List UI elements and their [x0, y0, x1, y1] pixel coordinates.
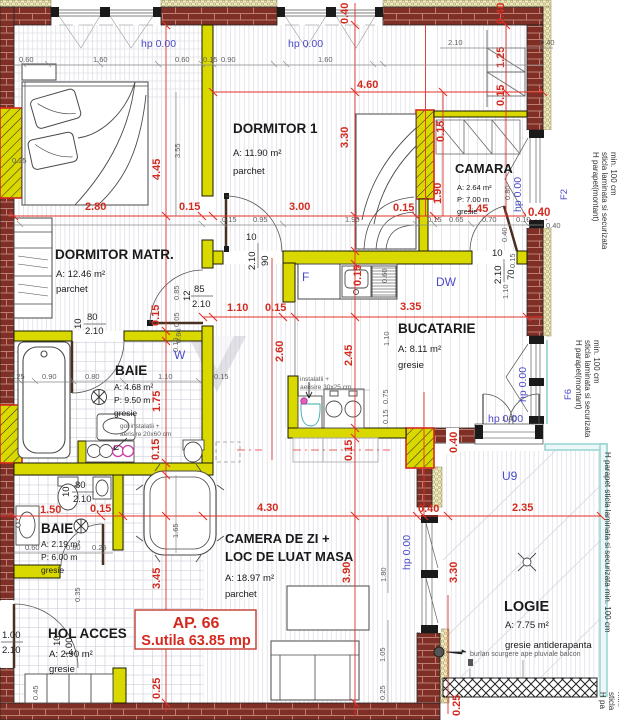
svg-text:2.10: 2.10: [247, 252, 258, 271]
svg-text:0.45: 0.45: [31, 685, 40, 700]
svg-text:1.10: 1.10: [227, 302, 248, 314]
svg-text:hp 0.00: hp 0.00: [517, 367, 529, 402]
svg-text:4.45: 4.45: [151, 159, 163, 180]
svg-text:3.30: 3.30: [448, 562, 460, 583]
svg-text:0.15: 0.15: [495, 85, 507, 106]
svg-text:0.15: 0.15: [435, 121, 447, 142]
svg-text:parchet: parchet: [56, 284, 88, 295]
svg-text:0.40: 0.40: [500, 227, 509, 242]
svg-text:12: 12: [182, 290, 193, 301]
svg-text:sticla: sticla: [607, 692, 616, 711]
svg-text:H parapet sticla laminata si s: H parapet sticla laminata si securizata …: [603, 452, 612, 633]
svg-text:0.40: 0.40: [448, 432, 460, 453]
svg-text:0.15: 0.15: [352, 265, 364, 286]
svg-text:LOGIE: LOGIE: [504, 599, 549, 615]
svg-text:1.10: 1.10: [501, 284, 510, 299]
svg-text:instalatii +: instalatii +: [300, 376, 329, 383]
svg-text:A: 2.64 m²: A: 2.64 m²: [457, 183, 492, 192]
svg-text:parchet: parchet: [225, 589, 257, 600]
svg-text:hp 0.00: hp 0.00: [401, 535, 413, 570]
svg-text:gresie antiderapanta: gresie antiderapanta: [505, 640, 592, 651]
svg-text:0.15: 0.15: [222, 215, 237, 224]
svg-text:1.60: 1.60: [318, 55, 333, 64]
svg-text:sticla laminata si securizata: sticla laminata si securizata: [600, 152, 609, 250]
svg-text:min. 100 cm: min. 100 cm: [609, 152, 618, 196]
svg-text:A: 8.11 m²: A: 8.11 m²: [398, 344, 441, 355]
svg-text:BAIE: BAIE: [115, 363, 147, 378]
svg-text:burlan scurgere ape pluviale b: burlan scurgere ape pluviale balcon: [470, 651, 581, 658]
svg-text:BAIE: BAIE: [41, 521, 73, 536]
svg-text:0.15: 0.15: [381, 409, 390, 424]
svg-text:BUCATARIE: BUCATARIE: [398, 321, 476, 336]
svg-text:2.80: 2.80: [85, 201, 106, 213]
svg-text:0.15: 0.15: [214, 372, 229, 381]
svg-text:gresie: gresie: [114, 408, 137, 418]
svg-text:W: W: [174, 348, 186, 362]
svg-text:0.40: 0.40: [528, 207, 550, 219]
svg-text:3.90: 3.90: [341, 562, 353, 583]
svg-text:A: 11.90 m²: A: 11.90 m²: [233, 148, 281, 159]
svg-text:gresie: gresie: [49, 664, 75, 675]
svg-text:2.10: 2.10: [192, 299, 211, 310]
svg-text:A: 12.46 m²: A: 12.46 m²: [56, 269, 105, 280]
svg-text:F2: F2: [559, 189, 570, 200]
svg-text:1.75: 1.75: [151, 391, 163, 412]
svg-text:2.60: 2.60: [274, 341, 286, 362]
svg-text:aerisire 20x60 cm: aerisire 20x60 cm: [120, 431, 171, 438]
svg-text:CAMARA: CAMARA: [455, 161, 513, 176]
svg-text:0.15: 0.15: [508, 253, 517, 268]
svg-text:0.15: 0.15: [203, 55, 218, 64]
svg-text:min. 100 cm: min. 100 cm: [592, 340, 601, 384]
svg-text:DORMITOR 1: DORMITOR 1: [233, 121, 318, 136]
svg-text:H parapet(montant): H parapet(montant): [574, 340, 583, 410]
svg-text:0.75: 0.75: [381, 389, 390, 404]
svg-text:S.utila 63.85 mp: S.utila 63.85 mp: [141, 633, 251, 649]
svg-text:80: 80: [75, 480, 86, 491]
svg-text:85: 85: [194, 284, 205, 295]
svg-text:0.80: 0.80: [85, 372, 100, 381]
svg-text:0.60: 0.60: [174, 328, 183, 343]
svg-text:0.10: 0.10: [516, 215, 531, 224]
svg-text:DW: DW: [436, 275, 457, 289]
svg-text:1.90: 1.90: [432, 183, 444, 204]
svg-text:P: 6.00 m: P: 6.00 m: [41, 552, 77, 562]
svg-text:10: 10: [246, 232, 257, 243]
svg-text:0.90: 0.90: [42, 372, 57, 381]
svg-text:H pa: H pa: [598, 692, 607, 709]
svg-text:1.60: 1.60: [93, 55, 108, 64]
svg-text:0.25: 0.25: [92, 543, 107, 552]
svg-text:2.10: 2.10: [493, 266, 504, 285]
svg-text:A: 2.90 m²: A: 2.90 m²: [49, 649, 93, 660]
svg-text:4.60: 4.60: [357, 79, 378, 91]
svg-text:H parapet(montant): H parapet(montant): [591, 152, 600, 222]
svg-text:0.25: 0.25: [151, 678, 163, 699]
svg-text:90: 90: [260, 255, 271, 266]
svg-text:0.70: 0.70: [482, 215, 497, 224]
svg-text:F6: F6: [563, 389, 574, 400]
svg-text:0.35: 0.35: [73, 587, 82, 602]
svg-text:hp 0.00: hp 0.00: [512, 177, 524, 212]
svg-text:2.10: 2.10: [448, 38, 463, 47]
svg-text:1.10: 1.10: [382, 331, 391, 346]
svg-text:0.25: 0.25: [378, 685, 387, 700]
svg-text:1.05: 1.05: [378, 647, 387, 662]
svg-text:1.10: 1.10: [158, 372, 173, 381]
svg-text:3.30: 3.30: [339, 127, 351, 148]
svg-text:0.60: 0.60: [25, 543, 40, 552]
svg-text:0.15: 0.15: [427, 215, 442, 224]
svg-text:0.25: 0.25: [12, 156, 27, 165]
svg-text:hp 0.00: hp 0.00: [288, 38, 323, 50]
svg-text:2.35: 2.35: [512, 502, 533, 514]
svg-text:A: 7.75 m²: A: 7.75 m²: [505, 620, 549, 631]
svg-text:0.60: 0.60: [175, 55, 190, 64]
svg-text:U9: U9: [502, 469, 518, 483]
svg-text:gresie: gresie: [457, 207, 477, 216]
svg-text:3.55: 3.55: [173, 143, 182, 158]
svg-text:10: 10: [61, 486, 72, 497]
svg-text:1.50: 1.50: [40, 504, 61, 516]
svg-text:0.15: 0.15: [393, 202, 414, 214]
svg-text:0.40: 0.40: [495, 3, 507, 24]
svg-text:0.25: 0.25: [451, 695, 463, 716]
svg-text:CAMERA DE ZI +: CAMERA DE ZI +: [225, 531, 330, 546]
svg-text:2.10: 2.10: [85, 326, 104, 337]
svg-text:0.15: 0.15: [343, 440, 355, 461]
svg-text:0.15: 0.15: [179, 201, 200, 213]
svg-text:0.60: 0.60: [19, 55, 34, 64]
svg-text:gresie: gresie: [398, 360, 424, 371]
svg-text:1.80: 1.80: [379, 567, 388, 582]
svg-text:0.15: 0.15: [150, 305, 162, 326]
svg-text:80: 80: [87, 312, 98, 323]
svg-text:0.15: 0.15: [150, 439, 162, 460]
svg-text:0.25: 0.25: [10, 372, 25, 381]
svg-text:F: F: [302, 270, 309, 284]
svg-text:LOC DE LUAT MASA: LOC DE LUAT MASA: [225, 549, 354, 564]
svg-text:0.40: 0.40: [540, 38, 555, 47]
svg-text:P: 9.50 m: P: 9.50 m: [114, 395, 150, 405]
svg-text:parchet: parchet: [233, 166, 265, 177]
svg-text:0.65: 0.65: [449, 215, 464, 224]
svg-text:1.00: 1.00: [2, 630, 21, 641]
svg-text:0.15: 0.15: [90, 503, 111, 515]
svg-text:3.00: 3.00: [289, 201, 310, 213]
svg-text:10: 10: [73, 318, 84, 329]
svg-text:HOL ACCES: HOL ACCES: [48, 626, 127, 641]
svg-text:0.40: 0.40: [546, 221, 561, 230]
svg-text:sticla laminata si securizata: sticla laminata si securizata: [583, 340, 592, 438]
svg-text:0.40: 0.40: [418, 503, 439, 515]
svg-text:0.15: 0.15: [265, 302, 286, 314]
svg-text:10: 10: [492, 248, 503, 259]
svg-text:A: 4.68 m²: A: 4.68 m²: [114, 382, 153, 392]
svg-text:DORMITOR MATR.: DORMITOR MATR.: [55, 247, 174, 262]
svg-text:3.35: 3.35: [400, 301, 421, 313]
svg-text:AP. 66: AP. 66: [173, 615, 220, 632]
svg-text:0.60: 0.60: [380, 268, 389, 283]
svg-text:1.65: 1.65: [171, 523, 180, 538]
svg-text:70: 70: [506, 269, 517, 280]
svg-text:0.90: 0.90: [221, 55, 236, 64]
svg-text:hp 0.00: hp 0.00: [141, 38, 176, 50]
svg-text:0.85: 0.85: [172, 285, 181, 300]
svg-text:2.45: 2.45: [343, 345, 355, 366]
svg-text:0.95: 0.95: [253, 215, 268, 224]
svg-text:3.45: 3.45: [151, 568, 163, 589]
svg-text:A: 2.19 m²: A: 2.19 m²: [41, 539, 80, 549]
svg-text:gresie: gresie: [41, 565, 64, 575]
svg-text:gol instalatii +: gol instalatii +: [120, 423, 160, 430]
svg-text:hp 0.00: hp 0.00: [488, 413, 523, 425]
svg-text:2.10: 2.10: [73, 494, 92, 505]
svg-text:0.40: 0.40: [339, 3, 351, 24]
svg-text:1.90: 1.90: [345, 215, 360, 224]
svg-text:2.10: 2.10: [2, 645, 21, 656]
svg-text:0.80: 0.80: [503, 185, 512, 200]
svg-text:4.30: 4.30: [257, 502, 278, 514]
svg-text:P: 7.00 m: P: 7.00 m: [457, 195, 489, 204]
svg-text:0.05: 0.05: [172, 312, 181, 327]
svg-text:A: 18.97 m²: A: 18.97 m²: [225, 573, 274, 584]
